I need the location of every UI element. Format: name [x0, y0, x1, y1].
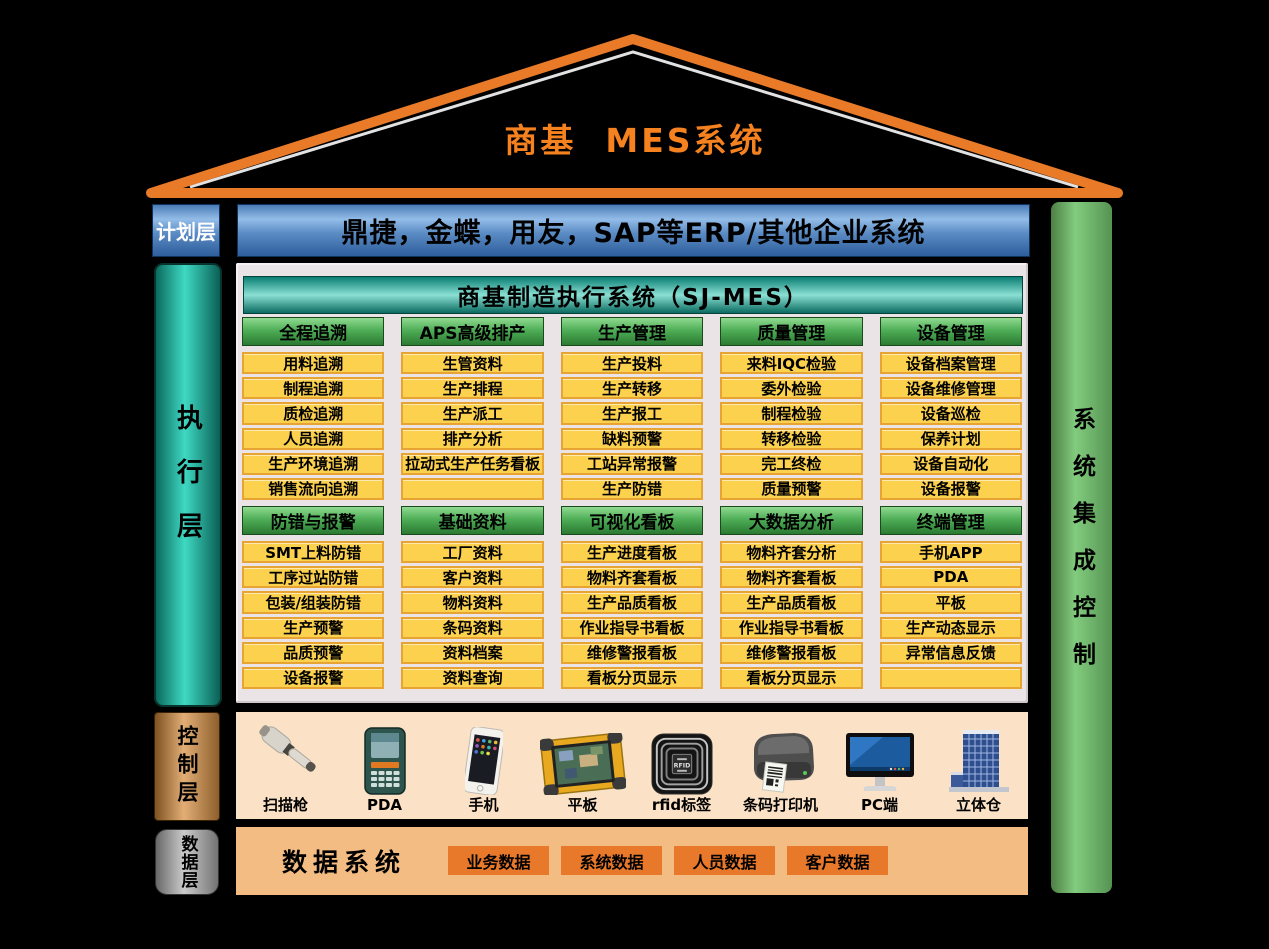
module-item: 设备自动化	[880, 453, 1022, 475]
layer-label-control: 控制层	[154, 712, 220, 821]
module-item: 设备报警	[242, 667, 384, 689]
module-item	[401, 478, 543, 500]
layer-label-data: 数据层	[155, 829, 219, 895]
module-header: 基础资料	[401, 506, 543, 535]
diagram-title: 商基 MES系统	[400, 114, 870, 162]
module-header: 可视化看板	[561, 506, 703, 535]
module-item: 用料追溯	[242, 352, 384, 374]
device-label: 立体仓	[956, 796, 1001, 814]
module-item: 生产转移	[561, 377, 703, 399]
module-item: 工站异常报警	[561, 453, 703, 475]
module-item: 生产环境追溯	[242, 453, 384, 475]
module-item: 工厂资料	[401, 541, 543, 563]
scanner-icon	[248, 721, 324, 795]
tablet-icon	[540, 721, 626, 795]
device-label: 扫描枪	[263, 796, 308, 814]
module-item: 品质预警	[242, 642, 384, 664]
module-visual-kanban: 可视化看板 生产进度看板 物料齐套看板 生产品质看板 作业指导书看板 维修警报看…	[561, 506, 703, 689]
module-item: 缺料预警	[561, 428, 703, 450]
module-item: 物料齐套看板	[561, 566, 703, 588]
module-item: 设备报警	[880, 478, 1022, 500]
module-item: 制程追溯	[242, 377, 384, 399]
module-header: 质量管理	[720, 317, 862, 346]
module-item: 维修警报看板	[720, 642, 862, 664]
module-item: 物料齐套看板	[720, 566, 862, 588]
device-label: PC端	[861, 796, 898, 814]
module-item: 设备维修管理	[880, 377, 1022, 399]
device-label: 手机	[468, 796, 498, 814]
module-item: 物料资料	[401, 591, 543, 613]
module-item: 转移检验	[720, 428, 862, 450]
module-quality-mgmt: 质量管理 来料IQC检验 委外检验 制程检验 转移检验 完工终检 质量预警	[720, 317, 862, 500]
module-item: SMT上料防错	[242, 541, 384, 563]
svg-text:RFID: RFID	[673, 762, 690, 769]
module-big-data-analysis: 大数据分析 物料齐套分析 物料齐套看板 生产品质看板 作业指导书看板 维修警报看…	[720, 506, 862, 689]
device-label: rfid标签	[652, 796, 711, 814]
device-warehouse: 立体仓	[929, 712, 1028, 819]
module-item: 质检追溯	[242, 402, 384, 424]
module-item: 拉动式生产任务看板	[401, 453, 543, 475]
module-item: 平板	[880, 591, 1022, 613]
data-box-personnel: 人员数据	[674, 846, 775, 875]
device-rfid: RFID rfid标签	[632, 712, 731, 819]
module-item: 生产排程	[401, 377, 543, 399]
device-barcode-printer: 条码打印机	[731, 712, 830, 819]
module-item: 生产品质看板	[720, 591, 862, 613]
rfid-icon: RFID	[651, 721, 713, 795]
warehouse-icon	[947, 721, 1011, 795]
device-phone: 手机	[434, 712, 533, 819]
sjmes-header-bar: 商基制造执行系统（SJ-MES）	[243, 276, 1023, 314]
module-header: 全程追溯	[242, 317, 384, 346]
phone-icon	[465, 721, 503, 795]
module-item: 完工终检	[720, 453, 862, 475]
module-production-mgmt: 生产管理 生产投料 生产转移 生产报工 缺料预警 工站异常报警 生产防错	[561, 317, 703, 500]
module-item: 制程检验	[720, 402, 862, 424]
module-item	[880, 667, 1022, 689]
module-item: 生产报工	[561, 402, 703, 424]
module-item: 质量预警	[720, 478, 862, 500]
module-equipment-mgmt: 设备管理 设备档案管理 设备维修管理 设备巡检 保养计划 设备自动化 设备报警	[880, 317, 1022, 500]
module-header: APS高级排产	[401, 317, 543, 346]
module-item: 看板分页显示	[561, 667, 703, 689]
data-box-business: 业务数据	[448, 846, 549, 875]
module-header: 防错与报警	[242, 506, 384, 535]
module-item: 委外检验	[720, 377, 862, 399]
printer-icon	[742, 721, 820, 795]
module-item: 生产进度看板	[561, 541, 703, 563]
roof-outline	[0, 0, 1269, 212]
layer-label-plan: 计划层	[152, 204, 220, 257]
data-layer-row: 数据系统 业务数据 系统数据 人员数据 客户数据	[236, 827, 1028, 895]
module-header: 设备管理	[880, 317, 1022, 346]
system-integration-bar: 系统集成控制	[1051, 202, 1112, 893]
device-label: 条码打印机	[743, 796, 818, 814]
module-item: 生产防错	[561, 478, 703, 500]
module-item: 物料齐套分析	[720, 541, 862, 563]
module-item: 工序过站防错	[242, 566, 384, 588]
module-item: 销售流向追溯	[242, 478, 384, 500]
mes-execution-panel: 商基制造执行系统（SJ-MES） 全程追溯 用料追溯 制程追溯 质检追溯 人员追…	[236, 263, 1028, 703]
module-item: 维修警报看板	[561, 642, 703, 664]
module-grid-row1: 全程追溯 用料追溯 制程追溯 质检追溯 人员追溯 生产环境追溯 销售流向追溯 A…	[242, 317, 1022, 500]
module-item: 异常信息反馈	[880, 642, 1022, 664]
module-header: 终端管理	[880, 506, 1022, 535]
device-tablet: 平板	[533, 712, 632, 819]
module-item: 客户资料	[401, 566, 543, 588]
module-item: 排产分析	[401, 428, 543, 450]
device-label: PDA	[367, 796, 402, 814]
module-item: 作业指导书看板	[720, 617, 862, 639]
module-terminal-mgmt: 终端管理 手机APP PDA 平板 生产动态显示 异常信息反馈	[880, 506, 1022, 689]
data-system-title: 数据系统	[282, 843, 406, 879]
module-error-proofing-alarm: 防错与报警 SMT上料防错 工序过站防错 包装/组装防错 生产预警 品质预警 设…	[242, 506, 384, 689]
module-item: 设备巡检	[880, 402, 1022, 424]
module-header: 生产管理	[561, 317, 703, 346]
module-item: 设备档案管理	[880, 352, 1022, 374]
device-pc: PC端	[830, 712, 929, 819]
module-item: 生产动态显示	[880, 617, 1022, 639]
module-item: 生管资料	[401, 352, 543, 374]
module-item: 资料档案	[401, 642, 543, 664]
module-item: 保养计划	[880, 428, 1022, 450]
layer-label-execute: 执行层	[154, 263, 222, 707]
data-box-customer: 客户数据	[787, 846, 888, 875]
module-aps-scheduling: APS高级排产 生管资料 生产排程 生产派工 排产分析 拉动式生产任务看板	[401, 317, 543, 500]
module-item: 生产派工	[401, 402, 543, 424]
module-item: 作业指导书看板	[561, 617, 703, 639]
device-pda: PDA	[335, 712, 434, 819]
control-devices-row: 扫描枪 PDA	[236, 712, 1028, 819]
device-label: 平板	[567, 796, 597, 814]
module-item: 生产投料	[561, 352, 703, 374]
module-item: 包装/组装防错	[242, 591, 384, 613]
pda-icon	[363, 721, 407, 795]
module-header: 大数据分析	[720, 506, 862, 535]
module-item: 手机APP	[880, 541, 1022, 563]
module-item: 人员追溯	[242, 428, 384, 450]
module-grid-row2: 防错与报警 SMT上料防错 工序过站防错 包装/组装防错 生产预警 品质预警 设…	[242, 506, 1022, 689]
pc-icon	[843, 721, 917, 795]
data-box-system: 系统数据	[561, 846, 662, 875]
module-item: PDA	[880, 566, 1022, 588]
module-item: 生产品质看板	[561, 591, 703, 613]
module-item: 来料IQC检验	[720, 352, 862, 374]
erp-systems-bar: 鼎捷，金蝶，用友，SAP等ERP/其他企业系统	[237, 204, 1030, 257]
device-scanner: 扫描枪	[236, 712, 335, 819]
module-basic-data: 基础资料 工厂资料 客户资料 物料资料 条码资料 资料档案 资料查询	[401, 506, 543, 689]
mes-architecture-diagram: 商基 MES系统 计划层 鼎捷，金蝶，用友，SAP等ERP/其他企业系统 执行层…	[0, 0, 1269, 949]
module-item: 条码资料	[401, 617, 543, 639]
module-item: 资料查询	[401, 667, 543, 689]
module-full-traceability: 全程追溯 用料追溯 制程追溯 质检追溯 人员追溯 生产环境追溯 销售流向追溯	[242, 317, 384, 500]
module-item: 生产预警	[242, 617, 384, 639]
module-item: 看板分页显示	[720, 667, 862, 689]
